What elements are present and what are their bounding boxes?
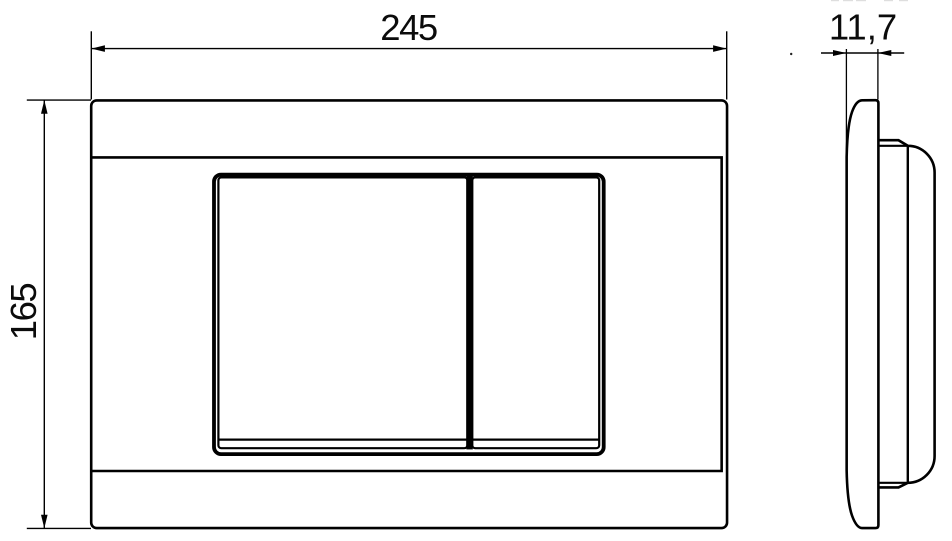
svg-text:11,7: 11,7 (829, 7, 897, 48)
svg-text:245: 245 (380, 7, 437, 48)
svg-text:165: 165 (3, 284, 44, 341)
